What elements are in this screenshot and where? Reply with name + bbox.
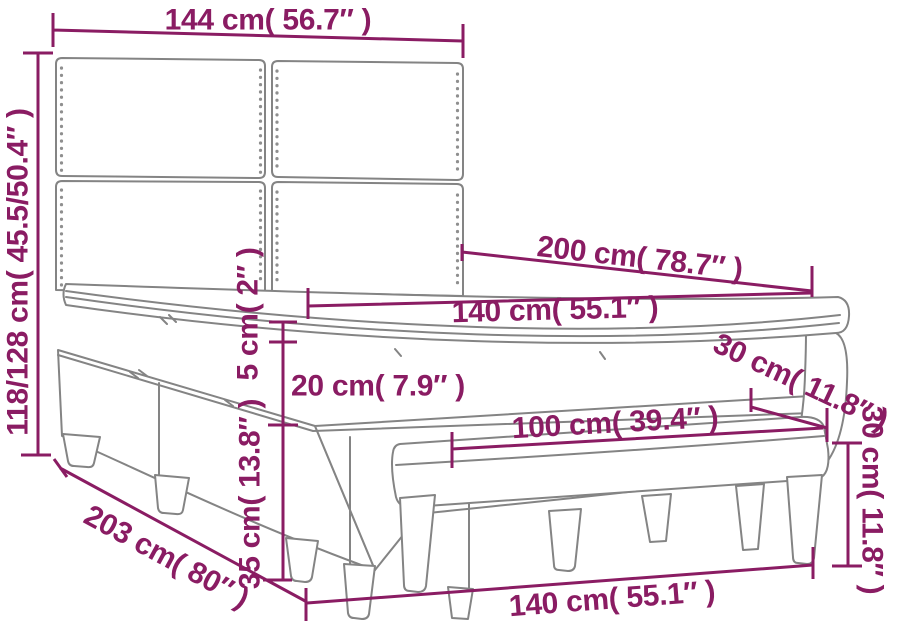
dimension-label: 30 cm( 11.8″ ) (856, 406, 889, 595)
bed-leg (155, 475, 189, 514)
dimension-label-topper: 5 cm( 2″ ) (232, 247, 265, 380)
dimension-label: 140 cm( 55.1″ ) (508, 575, 717, 623)
dimension-label: 140 cm( 55.1″ ) (451, 291, 658, 329)
bed-leg (286, 538, 318, 582)
dimension-label-mattress: 20 cm( 7.9″ ) (291, 370, 465, 403)
dimension-label: 203 cm( 80″ ) (79, 499, 255, 615)
dimension-bed-length: 200 cm( 78.7″ ) (462, 230, 812, 297)
bench-leg-back (642, 494, 671, 542)
diagram-page: 144 cm( 56.7″ ) 118/128 cm( 45.5/50.4″ )… (0, 0, 900, 623)
bench-leg-back (736, 484, 764, 550)
bed-leg (344, 564, 375, 619)
diagram-canvas: 144 cm( 56.7″ ) 118/128 cm( 45.5/50.4″ )… (0, 0, 900, 623)
dimension-label: 144 cm( 56.7″ ) (165, 4, 372, 37)
headboard-panel-top-right (272, 61, 463, 180)
dimension-headboard-height: 118/128 cm( 45.5/50.4″ ) (2, 53, 54, 455)
bench-leg-front-middle (549, 509, 581, 571)
bench-leg-front-right (787, 475, 822, 564)
bench-leg-front-left (400, 495, 435, 592)
bed-leg (63, 434, 100, 467)
headboard-panel-bottom-right (272, 182, 463, 296)
dimension-label-base: 35 cm( 13.8″ ) (234, 399, 267, 589)
dimension-headboard-width: 144 cm( 56.7″ ) (53, 4, 463, 59)
headboard-panel-top-left (56, 58, 265, 178)
bench (392, 417, 829, 592)
dimension-label: 118/128 cm( 45.5/50.4″ ) (2, 108, 35, 435)
dimension-label: 200 cm( 78.7″ ) (535, 230, 744, 286)
